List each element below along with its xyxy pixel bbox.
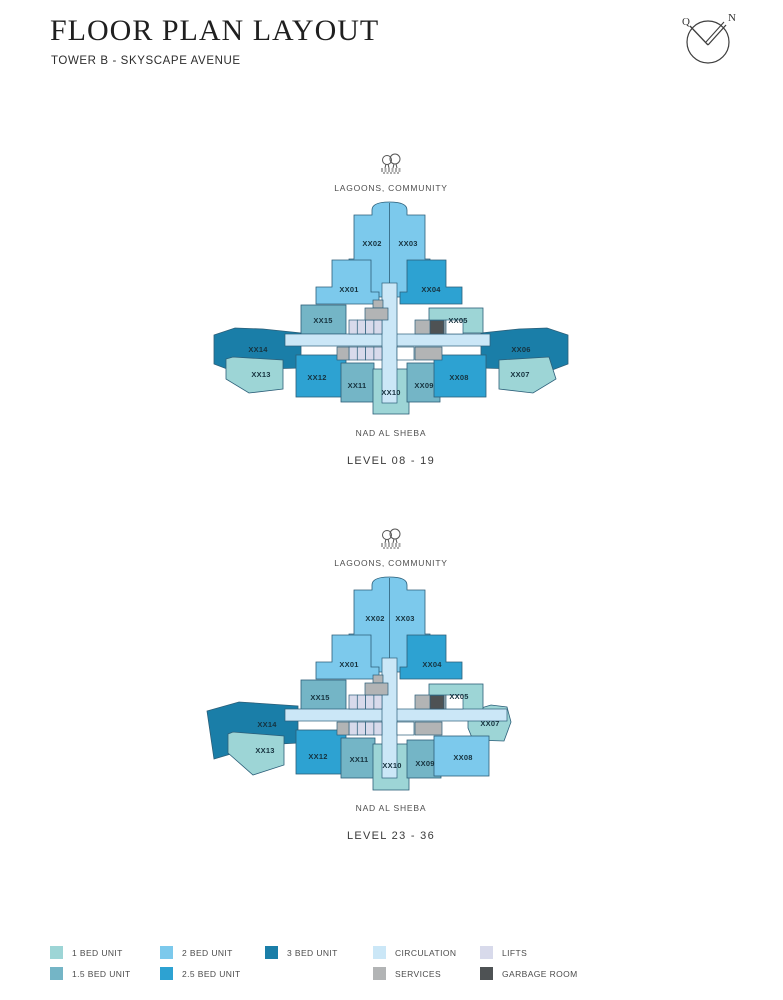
legend-swatch-garbage (480, 967, 493, 980)
unit-label-XX09: XX09 (415, 759, 434, 768)
compass-letter-right: N (728, 12, 736, 24)
unit-XX01-area (316, 635, 379, 679)
unit-label-XX08: XX08 (449, 373, 468, 382)
unit-label-XX10: XX10 (381, 388, 400, 397)
lagoons-community-icon (376, 527, 406, 551)
legend-swatch-two_half_bed (160, 967, 173, 980)
plan1-context: LAGOONS, COMMUNITY (201, 152, 581, 193)
plan-bottom-label: NAD AL SHEBA (201, 428, 581, 438)
legend-label: 2.5 BED UNIT (182, 969, 241, 979)
legend-swatch-services (373, 967, 386, 980)
unit-label-XX11: XX11 (348, 381, 367, 390)
unit-label-XX03: XX03 (398, 239, 417, 248)
unit-label-XX07: XX07 (480, 719, 499, 728)
floor-plan-section-level-08-19: LAGOONS, COMMUNITY XX01XX02XX03XX04XX05X… (201, 152, 581, 484)
page-subtitle: TOWER B - SKYSCAPE AVENUE (51, 55, 241, 67)
unit-label-XX15: XX15 (310, 693, 329, 702)
lifts-area (349, 347, 357, 360)
lifts-area (349, 320, 357, 334)
unit-label-XX05: XX05 (448, 316, 467, 325)
legend-label: GARBAGE ROOM (502, 969, 578, 979)
legend-label: 3 BED UNIT (287, 948, 338, 958)
plan-top-label: LAGOONS, COMMUNITY (201, 183, 581, 193)
lifts-area (374, 695, 382, 709)
plan-top-label: LAGOONS, COMMUNITY (201, 558, 581, 568)
legend-label: 1.5 BED UNIT (72, 969, 131, 979)
floor-plan-section-level-23-36: LAGOONS, COMMUNITY XX01XX02XX03XX04XX05X… (201, 527, 581, 859)
services-area (365, 683, 388, 695)
legend-item: 2.5 BED UNIT (160, 967, 241, 980)
legend-swatch-circulation (373, 946, 386, 959)
plan-level-label: LEVEL 08 - 19 (201, 455, 581, 467)
lifts-area (374, 347, 382, 360)
plan-bottom-label: NAD AL SHEBA (201, 803, 581, 813)
plan2-context: LAGOONS, COMMUNITY (201, 527, 581, 568)
services-area (415, 347, 442, 360)
unit-label-XX07: XX07 (510, 370, 529, 379)
lifts-area (357, 320, 365, 334)
legend-item: 1 BED UNIT (50, 946, 123, 959)
white-area (397, 722, 414, 735)
services-area (415, 722, 442, 735)
white-area (397, 347, 414, 360)
garbage-room-area (430, 321, 444, 335)
legend-item: SERVICES (373, 967, 441, 980)
lifts-area (349, 695, 357, 709)
floor-plan-drawing-level-23-36: XX01XX02XX03XX04XX05XX07XX08XX09XX10XX11… (201, 572, 581, 800)
services-area (373, 300, 383, 308)
services-area (373, 675, 383, 683)
unit-label-XX03: XX03 (395, 614, 414, 623)
legend-swatch-one_bed (50, 946, 63, 959)
lifts-area (374, 722, 382, 735)
unit-label-XX14: XX14 (257, 720, 277, 729)
unit-label-XX05: XX05 (449, 692, 468, 701)
unit-label-XX09: XX09 (414, 381, 433, 390)
legend-item: 2 BED UNIT (160, 946, 233, 959)
unit-label-XX13: XX13 (255, 746, 274, 755)
compass-icon: Q N (674, 8, 740, 68)
legend-label: 2 BED UNIT (182, 948, 233, 958)
unit-label-XX02: XX02 (365, 614, 384, 623)
unit-label-XX04: XX04 (421, 285, 441, 294)
legend-label: 1 BED UNIT (72, 948, 123, 958)
unit-label-XX12: XX12 (308, 752, 327, 761)
page-title: FLOOR PLAN LAYOUT (50, 14, 379, 48)
legend-item: GARBAGE ROOM (480, 967, 578, 980)
unit-XX04-area (400, 635, 462, 679)
garbage-room-area (430, 696, 444, 710)
services-area (365, 308, 388, 320)
legend-label: CIRCULATION (395, 948, 456, 958)
plan-level-label: LEVEL 23 - 36 (201, 830, 581, 842)
lifts-area (366, 347, 374, 360)
legend-label: SERVICES (395, 969, 441, 979)
lifts-area (366, 320, 374, 334)
legend-swatch-three_bed (265, 946, 278, 959)
unit-label-XX08: XX08 (453, 753, 472, 762)
legend-item: LIFTS (480, 946, 527, 959)
lifts-area (349, 722, 357, 735)
lagoons-community-icon (376, 152, 406, 176)
unit-label-XX06: XX06 (511, 345, 530, 354)
page: FLOOR PLAN LAYOUT TOWER B - SKYSCAPE AVE… (0, 0, 783, 1000)
services-area (337, 347, 349, 360)
lifts-area (366, 695, 374, 709)
circulation-area (382, 283, 397, 403)
compass-letter-left: Q (682, 16, 690, 28)
unit-label-XX11: XX11 (350, 755, 369, 764)
unit-label-XX10: XX10 (382, 761, 401, 770)
services-area (337, 722, 349, 735)
legend-swatch-two_bed (160, 946, 173, 959)
unit-XX04-area (400, 260, 462, 304)
lifts-area (357, 695, 365, 709)
unit-label-XX04: XX04 (422, 660, 442, 669)
floor-plan-drawing-level-08-19: XX01XX02XX03XX04XX05XX06XX07XX08XX09XX10… (201, 197, 581, 425)
legend-item: 3 BED UNIT (265, 946, 338, 959)
lifts-area (374, 320, 382, 334)
legend-label: LIFTS (502, 948, 527, 958)
unit-label-XX14: XX14 (248, 345, 268, 354)
lifts-area (357, 722, 365, 735)
unit-label-XX15: XX15 (313, 316, 332, 325)
unit-label-XX01: XX01 (339, 285, 358, 294)
unit-label-XX01: XX01 (339, 660, 358, 669)
legend-item: CIRCULATION (373, 946, 456, 959)
unit-label-XX12: XX12 (307, 373, 326, 382)
legend-swatch-lifts (480, 946, 493, 959)
legend-item: 1.5 BED UNIT (50, 967, 131, 980)
lifts-area (357, 347, 365, 360)
unit-label-XX13: XX13 (251, 370, 270, 379)
unit-XX01-area (316, 260, 379, 304)
legend-swatch-one_half_bed (50, 967, 63, 980)
lifts-area (366, 722, 374, 735)
unit-label-XX02: XX02 (362, 239, 381, 248)
